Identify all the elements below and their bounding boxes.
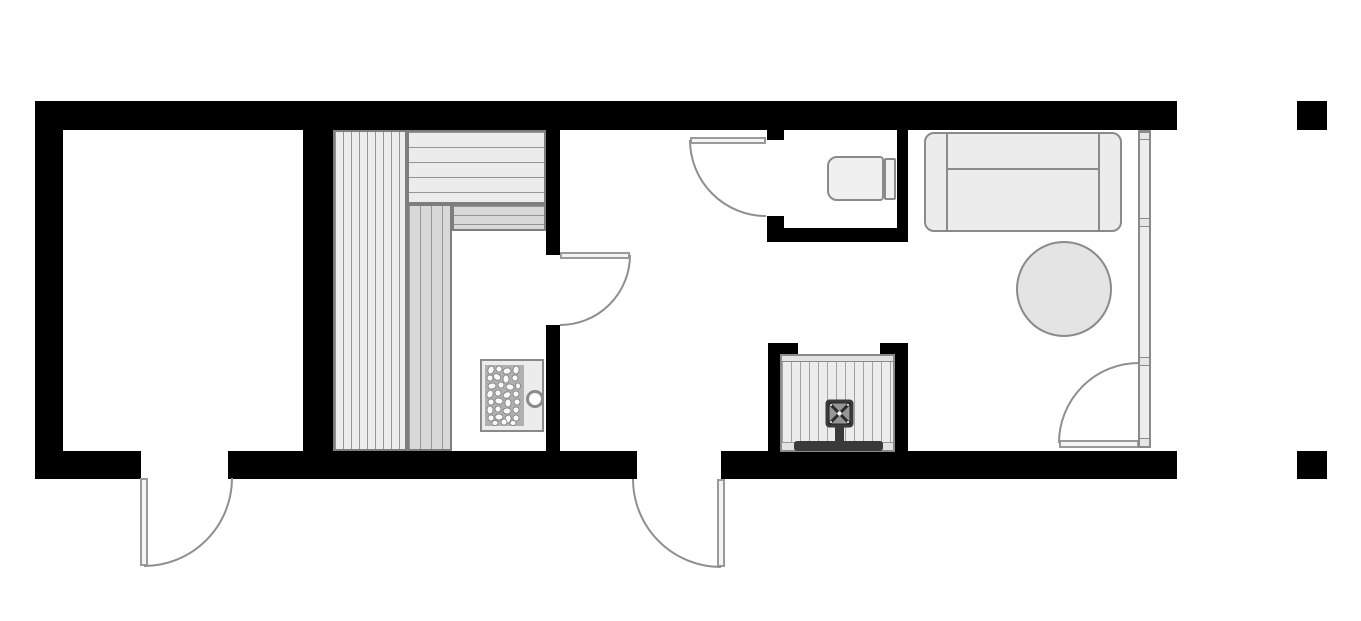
wall-wc-right bbox=[897, 130, 908, 242]
sauna-bench-top-upper bbox=[407, 130, 546, 204]
toilet-tank bbox=[884, 158, 896, 200]
window-cap-bottom bbox=[1139, 438, 1150, 447]
sauna-bench-left-lower bbox=[407, 204, 452, 451]
wall-storage-sauna-divider bbox=[303, 130, 333, 451]
round-table bbox=[1016, 241, 1112, 337]
heater-knob bbox=[526, 390, 544, 408]
exit-door-left-swing-arc bbox=[144, 478, 232, 566]
wall-sauna-right-lower bbox=[546, 325, 560, 451]
wall-wc-bottom bbox=[767, 228, 908, 242]
terrace-post-bottom bbox=[1297, 451, 1327, 479]
sauna-heater bbox=[480, 359, 544, 432]
floor-plan bbox=[0, 0, 1361, 621]
sofa-armrest-divider-right bbox=[1098, 133, 1100, 231]
wall-bottom-right-segment bbox=[721, 451, 1177, 479]
heater-stones-texture bbox=[485, 365, 524, 426]
wall-left bbox=[35, 130, 63, 451]
sauna-bench-top-lower bbox=[452, 204, 546, 231]
wall-wc-left-stub bbox=[767, 130, 784, 140]
window-mullion-upper bbox=[1139, 218, 1150, 227]
wall-top bbox=[35, 101, 1177, 130]
sofa-armrest-divider-left bbox=[946, 133, 948, 231]
wall-sauna-right-upper bbox=[546, 130, 560, 255]
exit-door-middle-swing-arc bbox=[633, 479, 721, 567]
window-mullion-lower bbox=[1139, 357, 1150, 366]
wc-door-swing-arc bbox=[690, 140, 766, 216]
terrace-post-top bbox=[1297, 101, 1327, 130]
window-cap-top bbox=[1139, 132, 1150, 140]
toilet-bowl bbox=[827, 156, 884, 201]
fireplace-top-band bbox=[782, 356, 893, 362]
sauna-door-swing-arc bbox=[560, 255, 630, 325]
glass-door-swing-arc bbox=[1059, 363, 1139, 443]
sofa-backrest-divider bbox=[946, 168, 1100, 170]
window-wall bbox=[1138, 130, 1151, 448]
sauna-bench-left-upper bbox=[333, 130, 407, 451]
wall-bottom-left-segment bbox=[35, 451, 141, 479]
wall-bottom-middle-segment bbox=[228, 451, 637, 479]
fireplace-flue bbox=[825, 399, 854, 428]
sofa bbox=[924, 132, 1122, 232]
